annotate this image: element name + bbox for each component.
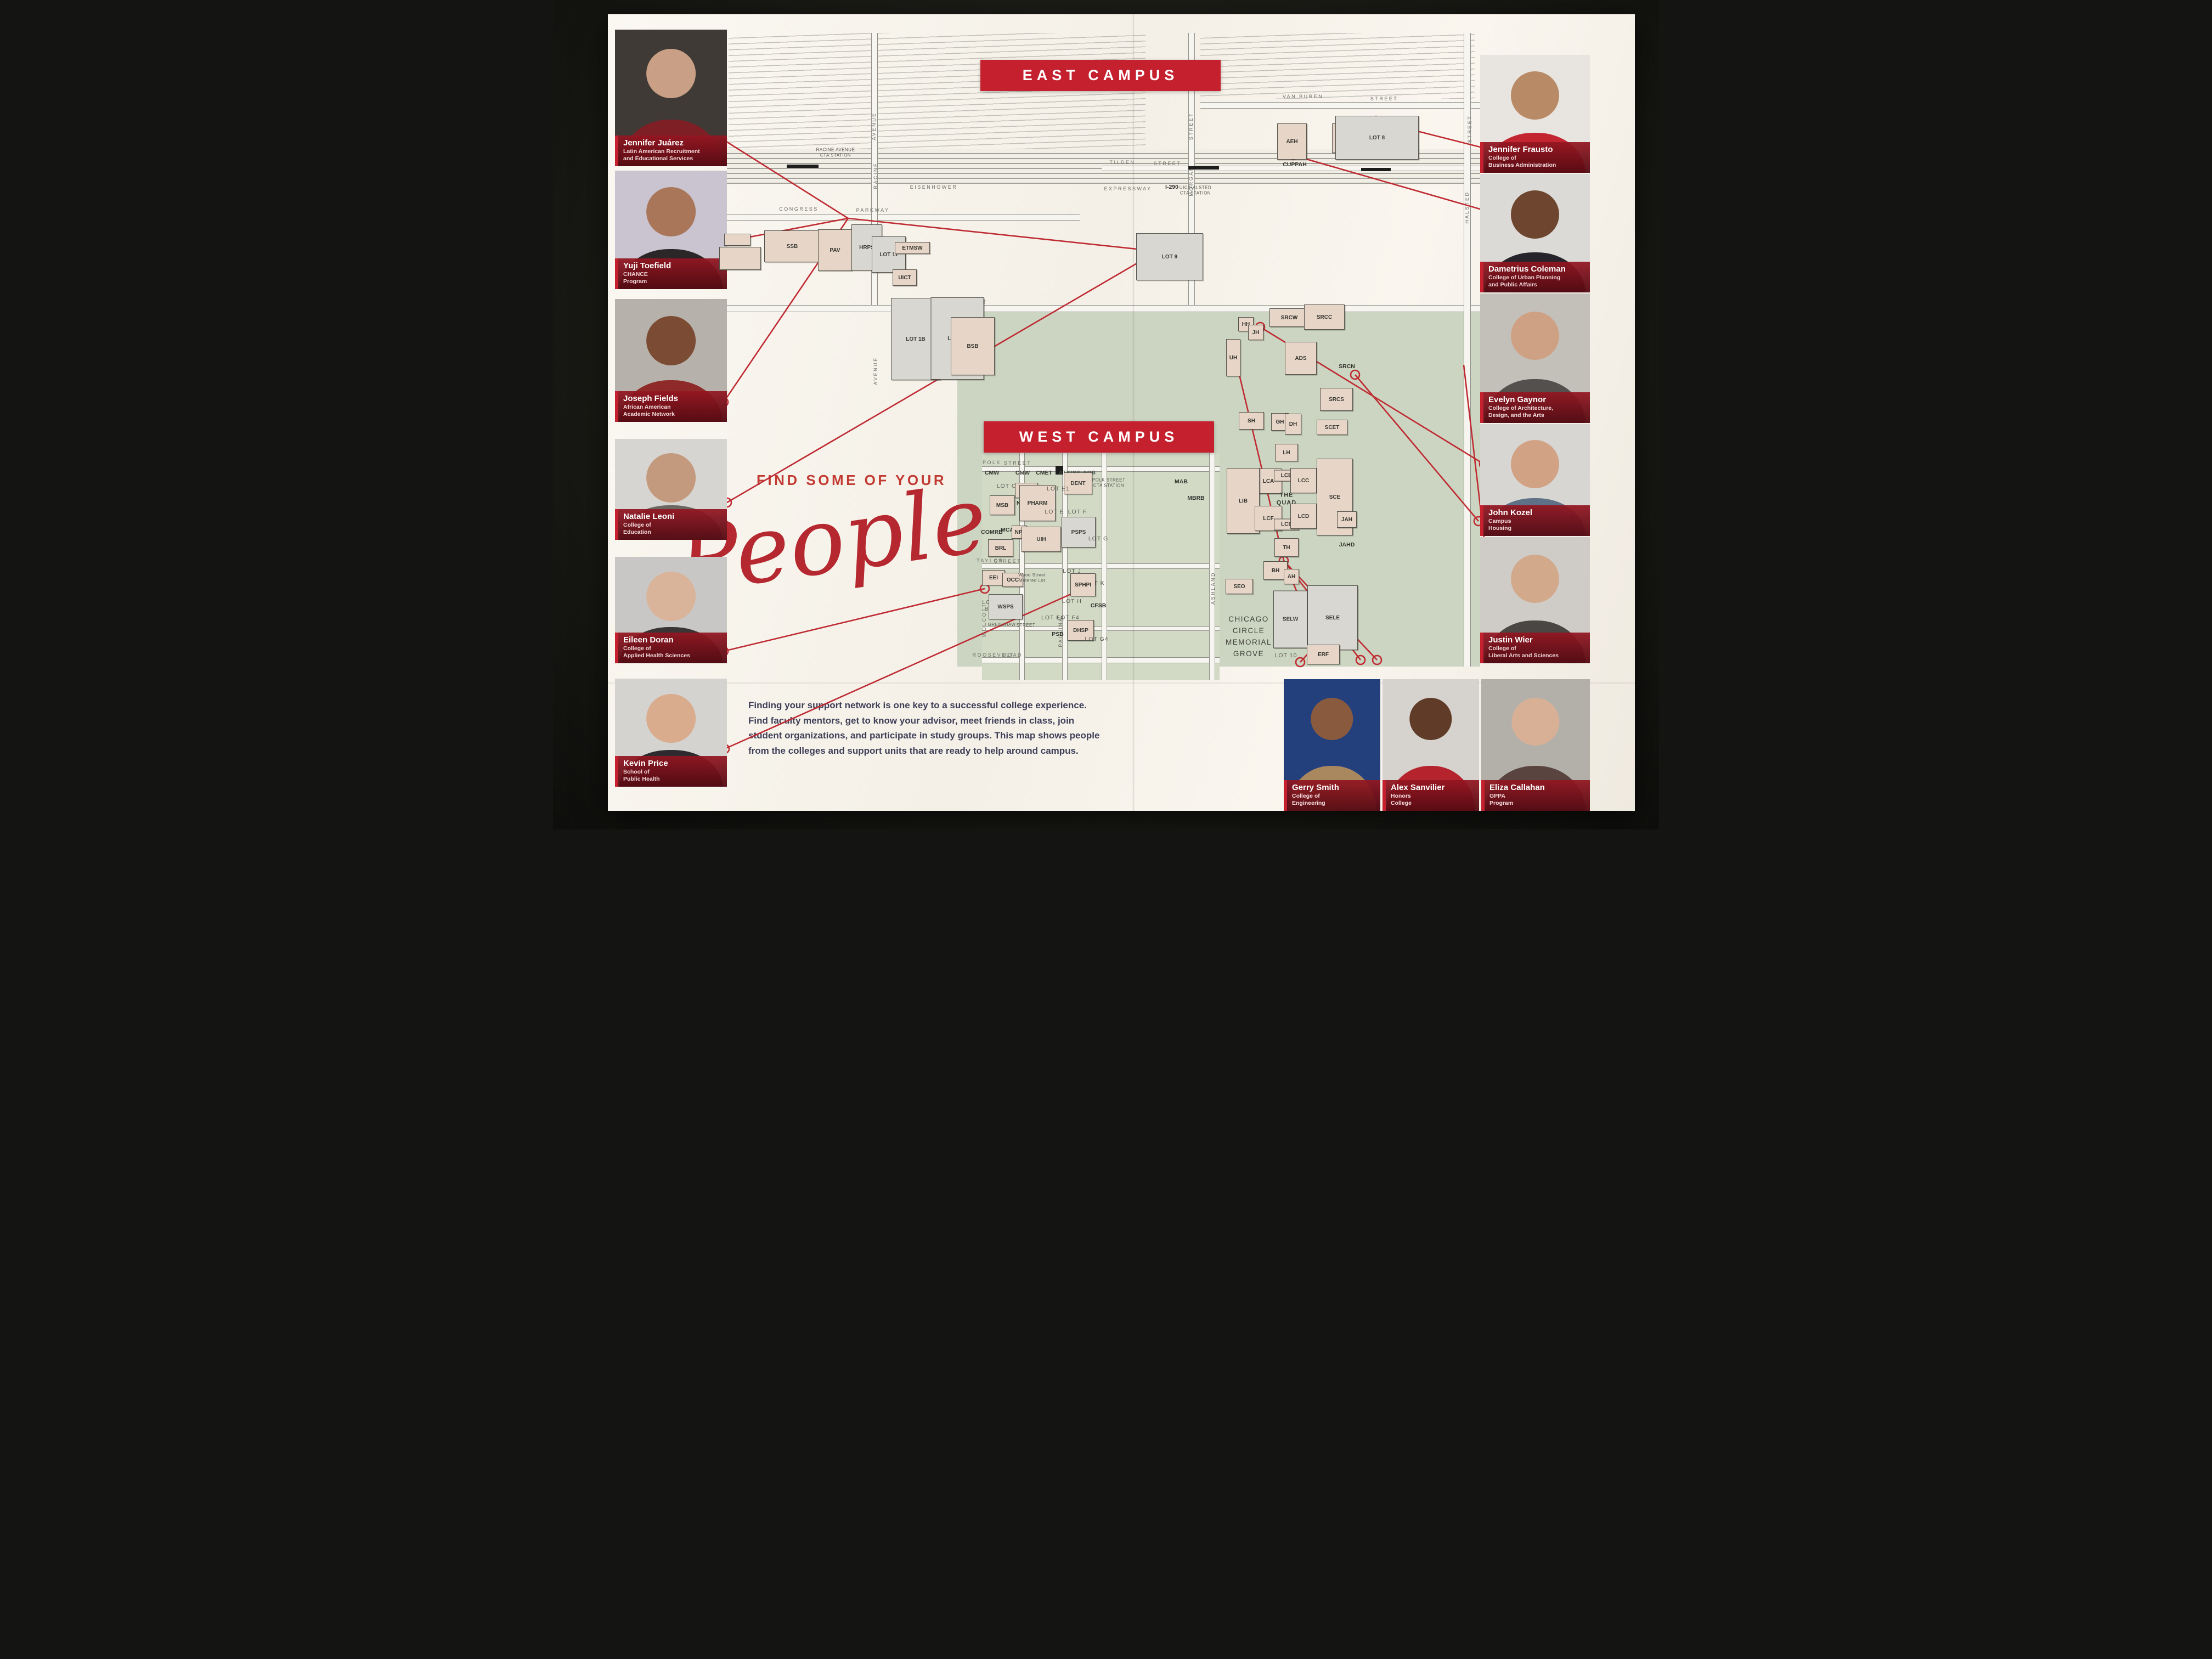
map-road-harrison — [727, 305, 1480, 312]
person-tile-evelyn-gaynor: Evelyn GaynorCollege of Architecture,Des… — [1480, 294, 1590, 423]
map-label-polk: POLK — [983, 460, 1001, 465]
map-building-srcc: SRCC — [1304, 304, 1345, 330]
person-dept: and Public Affairs — [1488, 281, 1585, 289]
map-building-ah: AH — [1284, 569, 1299, 584]
map-label-jahd: JAHD — [1339, 541, 1355, 548]
fold-crease — [1132, 14, 1135, 811]
map-building-lh: LH — [1275, 444, 1298, 461]
person-dept: Applied Health Sciences — [623, 652, 722, 659]
map-building-scet: SCET — [1317, 420, 1347, 435]
map-label-avenue: AVENUE — [873, 357, 878, 385]
person-name: Gerry Smith — [1292, 783, 1375, 793]
map-building-pav: PAV — [818, 229, 852, 271]
map-label-street: STREET — [994, 558, 1022, 564]
person-dept: College of Architecture, — [1488, 405, 1585, 412]
person-label: Eliza CallahanGPPAProgram — [1481, 780, 1590, 811]
person-dept: Design, and the Arts — [1488, 412, 1585, 419]
map-building-uih: UIH — [1022, 527, 1061, 552]
map-building-ads: ADS — [1285, 342, 1317, 375]
map-lot-wsps: WSPS — [989, 594, 1023, 619]
avatar — [1511, 698, 1559, 746]
avatar — [646, 316, 696, 365]
map-label-morgan: MORGAN — [1188, 166, 1194, 196]
person-tile-john-kozel: John KozelCampusHousing — [1480, 424, 1590, 536]
map-label-lot-f: LOT F — [1068, 509, 1087, 515]
map-label-cmw: CMW — [985, 470, 999, 476]
paragraph-line: from the colleges and support units that… — [748, 743, 1099, 759]
map-label-lot-e: LOT E — [1045, 509, 1064, 515]
map-building-ssb: SSB — [764, 230, 820, 262]
map-label-polk-street-cta-station: POLK STREET CTA STATION — [1092, 478, 1126, 489]
east-campus-banner: EAST CAMPUS — [980, 60, 1221, 91]
person-name: Eileen Doran — [623, 635, 722, 645]
map-label-halsted: HALSTED — [1464, 191, 1470, 223]
map-label-ashland: ASHLAND — [1210, 572, 1216, 605]
map-building-uict: UICT — [893, 269, 917, 286]
person-dept: College of — [1488, 645, 1585, 652]
person-dept: Program — [623, 278, 722, 285]
person-tile-jennifer-ju-rez: Jennifer JuárezLatin American Recruitmen… — [615, 30, 727, 166]
avatar — [1511, 71, 1559, 120]
map-label-van-buren: VAN BUREN — [1283, 94, 1323, 99]
map-label-expressway: EXPRESSWAY — [1104, 186, 1152, 191]
map-lot-sele: SELE — [1307, 585, 1358, 650]
person-tile-joseph-fields: Joseph FieldsAfrican AmericanAcademic Ne… — [615, 299, 727, 422]
person-dept: College of Urban Planning — [1488, 274, 1585, 281]
map-label-mbrb: MBRB — [1187, 495, 1205, 501]
person-label: Jennifer JuárezLatin American Recruitmen… — [615, 136, 727, 166]
person-dept: Business Administration — [1488, 162, 1585, 169]
map-building-bsb: BSB — [951, 317, 995, 375]
map-label-congress: CONGRESS — [779, 206, 819, 212]
avatar — [646, 453, 696, 503]
map-road-taylor — [982, 563, 1220, 569]
person-label: Joseph FieldsAfrican AmericanAcademic Ne… — [615, 391, 727, 422]
person-name: Jennifer Juárez — [623, 138, 722, 148]
person-dept: Housing — [1488, 525, 1585, 532]
map-lot-selw: SELW — [1273, 591, 1307, 648]
map-road-roosevelt — [982, 657, 1220, 663]
map-label-wood-street-metered-lot: Wood Street Metered Lot — [1018, 573, 1046, 584]
person-name: Natalie Leoni — [623, 512, 722, 522]
map-building-uh: UH — [1226, 339, 1240, 376]
paragraph-line: Finding your support network is one key … — [748, 698, 1099, 713]
person-tile-dametrius-coleman: Dametrius ColemanCollege of Urban Planni… — [1480, 174, 1590, 292]
person-tile-jennifer-frausto: Jennifer FraustoCollege ofBusiness Admin… — [1480, 55, 1590, 173]
person-dept: College of — [623, 645, 722, 652]
map-building-erf: ERF — [1307, 645, 1340, 664]
person-tile-eliza-callahan: Eliza CallahanGPPAProgram — [1481, 679, 1590, 811]
avatar — [1511, 440, 1559, 488]
map-label-road: ROAD — [1003, 652, 1023, 658]
person-tile-kevin-price: Kevin PriceSchool ofPublic Health — [615, 679, 727, 787]
person-dept: CHANCE — [623, 271, 722, 278]
map-label-lot-g4: LOT G4 — [1085, 636, 1108, 642]
map-label-cmet: CMET — [1036, 470, 1052, 476]
person-tile-alex-sanvilier: Alex SanvilierHonorsCollege — [1383, 679, 1479, 811]
person-tile-natalie-leoni: Natalie LeoniCollege ofEducation — [615, 439, 727, 540]
map-building-dh: DH — [1285, 414, 1301, 435]
map-cta-x — [1188, 166, 1219, 170]
map-lot-psps: PSPS — [1062, 517, 1096, 548]
map-label-tilden: TILDEN — [1109, 160, 1135, 165]
person-label: Jennifer FraustoCollege ofBusiness Admin… — [1480, 142, 1590, 173]
person-label: Yuji ToefieldCHANCEProgram — [615, 258, 727, 289]
person-name: Yuji Toefield — [623, 261, 722, 271]
map-building-x — [724, 234, 751, 246]
map-label-comrb: COMRB — [981, 529, 1003, 535]
person-tile-gerry-smith: Gerry SmithCollege ofEngineering — [1284, 679, 1380, 811]
map-label-lot-e1: LOT E1 — [1047, 486, 1070, 492]
map-label-avenue: AVENUE — [871, 112, 877, 140]
person-label: Kevin PriceSchool ofPublic Health — [615, 756, 727, 787]
map-label-eisenhower: EISENHOWER — [910, 184, 958, 190]
person-dept: Public Health — [623, 776, 722, 783]
map-label-i-290: I-290 — [1165, 184, 1178, 190]
person-tile-yuji-toefield: Yuji ToefieldCHANCEProgram — [615, 171, 727, 289]
avatar — [1409, 698, 1452, 740]
map-building-eei: EEI — [982, 570, 1005, 585]
person-dept: GPPA — [1489, 793, 1585, 800]
map-building-srcs: SRCS — [1320, 388, 1353, 411]
map-label-cmw: CMW — [1015, 470, 1030, 476]
person-dept: Liberal Arts and Sciences — [1488, 652, 1585, 659]
person-name: Dametrius Coleman — [1488, 264, 1585, 274]
person-tile-eileen-doran: Eileen DoranCollege ofApplied Health Sci… — [615, 557, 727, 663]
person-tile-justin-wier: Justin WierCollege ofLiberal Arts and Sc… — [1480, 537, 1590, 663]
person-name: Alex Sanvilier — [1391, 783, 1474, 793]
west-campus-banner-label: WEST CAMPUS — [1019, 428, 1179, 445]
person-name: John Kozel — [1488, 508, 1585, 518]
brochure-photo: EAST CAMPUS WEST CAMPUS FIND SOME OF YOU… — [553, 0, 1659, 830]
map-label-street: STREET — [1017, 623, 1036, 628]
map-road-van-buren — [1200, 102, 1480, 109]
map-label-street: STREET — [1004, 460, 1032, 466]
map-label-lot-g: LOT G — [1088, 535, 1108, 542]
map-building-sh: SH — [1239, 412, 1264, 430]
map-building-lcd: LCD — [1290, 504, 1317, 529]
person-dept: Engineering — [1292, 800, 1375, 807]
person-label: Evelyn GaynorCollege of Architecture,Des… — [1480, 392, 1590, 423]
person-name: Joseph Fields — [623, 394, 722, 404]
map-label-racine-avenue-cta-station: RACINE AVENUE CTA STATION — [816, 148, 855, 159]
person-dept: Honors — [1391, 793, 1474, 800]
map-label-lot-h: LOT H — [1062, 598, 1082, 605]
person-label: Gerry SmithCollege ofEngineering — [1284, 780, 1380, 811]
railyard-texture — [729, 33, 1145, 159]
map-building-brl: BRL — [988, 539, 1013, 557]
map-label-street: STREET — [1370, 96, 1398, 101]
person-label: Alex SanvilierHonorsCollege — [1383, 780, 1479, 811]
person-dept: African American — [623, 404, 722, 411]
avatar — [646, 49, 696, 98]
intro-paragraph: Finding your support network is one key … — [748, 698, 1099, 758]
person-label: Dametrius ColemanCollege of Urban Planni… — [1480, 262, 1590, 292]
map-label-street: STREET — [1188, 112, 1194, 140]
map-label-lot-10: LOT 10 — [1275, 652, 1297, 659]
map-road-congress — [727, 214, 1080, 221]
map-label-chicago-circle-memorial-grove: CHICAGO CIRCLE MEMORIAL GROVE — [1226, 614, 1272, 660]
map-label-racine: RACINE — [873, 162, 878, 189]
person-dept: Education — [623, 529, 722, 536]
avatar — [646, 572, 696, 621]
map-building-aeh: AEH — [1277, 123, 1307, 160]
avatar — [1311, 698, 1353, 740]
map-lot-lot-9: LOT 9 — [1136, 233, 1203, 280]
person-dept: School of — [623, 769, 722, 776]
map-building-seo: SEO — [1226, 579, 1253, 594]
map-label-psb: PSB — [1052, 631, 1064, 637]
person-name: Evelyn Gaynor — [1488, 395, 1585, 405]
person-dept: College of — [1488, 155, 1585, 162]
avatar — [646, 187, 696, 236]
map-label-mab: MAB — [1175, 478, 1188, 485]
map-building-jah: JAH — [1337, 511, 1357, 528]
person-dept: College of — [1292, 793, 1375, 800]
map-label-parkway: PARKWAY — [856, 207, 890, 213]
map-label-srcn: SRCN — [1339, 363, 1355, 370]
person-name: Justin Wier — [1488, 635, 1585, 645]
person-dept: Latin American Recruitment — [623, 148, 722, 155]
paragraph-line: student organizations, and participate i… — [748, 728, 1099, 743]
paragraph-line: Find faculty mentors, get to know your a… — [748, 713, 1099, 729]
avatar — [1511, 312, 1559, 360]
map-cta-x — [1361, 168, 1391, 171]
railyard-texture — [1200, 33, 1475, 99]
east-campus-banner-label: EAST CAMPUS — [1023, 67, 1179, 84]
map-label-street: STREET — [1467, 115, 1472, 143]
map-building-msb: MSB — [990, 495, 1015, 515]
map-label-street: STREET — [1154, 161, 1182, 166]
avatar — [1511, 190, 1559, 239]
person-name: Eliza Callahan — [1489, 783, 1585, 793]
map-building-jh: JH — [1248, 325, 1263, 340]
person-dept: College — [1391, 800, 1474, 807]
person-dept: Campus — [1488, 518, 1585, 525]
person-label: John KozelCampusHousing — [1480, 505, 1590, 536]
map-label-uic-halsted-cta-station: UIC/HALSTED CTA STATION — [1180, 185, 1211, 197]
person-name: Jennifer Frausto — [1488, 145, 1585, 155]
map-label-cuppah: CUPPAH — [1283, 161, 1307, 168]
map-building-etmsw: ETMSW — [895, 242, 930, 254]
person-label: Eileen DoranCollege ofApplied Health Sci… — [615, 633, 727, 663]
map-road-ashland — [1209, 453, 1215, 680]
map-building-x — [719, 247, 761, 270]
avatar — [1511, 555, 1559, 603]
map-building-srcw: SRCW — [1269, 308, 1309, 327]
map-lot-lot-8: LOT 8 — [1335, 116, 1419, 160]
person-dept: Program — [1489, 800, 1585, 807]
person-label: Natalie LeoniCollege ofEducation — [615, 509, 727, 540]
person-dept: and Educational Services — [623, 155, 722, 162]
map-label-cfsb: CFSB — [1091, 602, 1107, 609]
avatar — [646, 694, 696, 743]
person-label: Justin WierCollege ofLiberal Arts and Sc… — [1480, 633, 1590, 663]
person-dept: Academic Network — [623, 411, 722, 418]
map-building-th: TH — [1274, 538, 1299, 557]
map-cta-x — [787, 165, 819, 168]
map-label-grenshaw: GRENSHAW — [988, 622, 1016, 628]
map-building-sphpi: SPHPI — [1070, 573, 1096, 596]
map-building-lcc: LCC — [1290, 468, 1317, 493]
west-campus-banner: WEST CAMPUS — [984, 421, 1214, 453]
person-dept: College of — [623, 522, 722, 529]
person-name: Kevin Price — [623, 759, 722, 769]
